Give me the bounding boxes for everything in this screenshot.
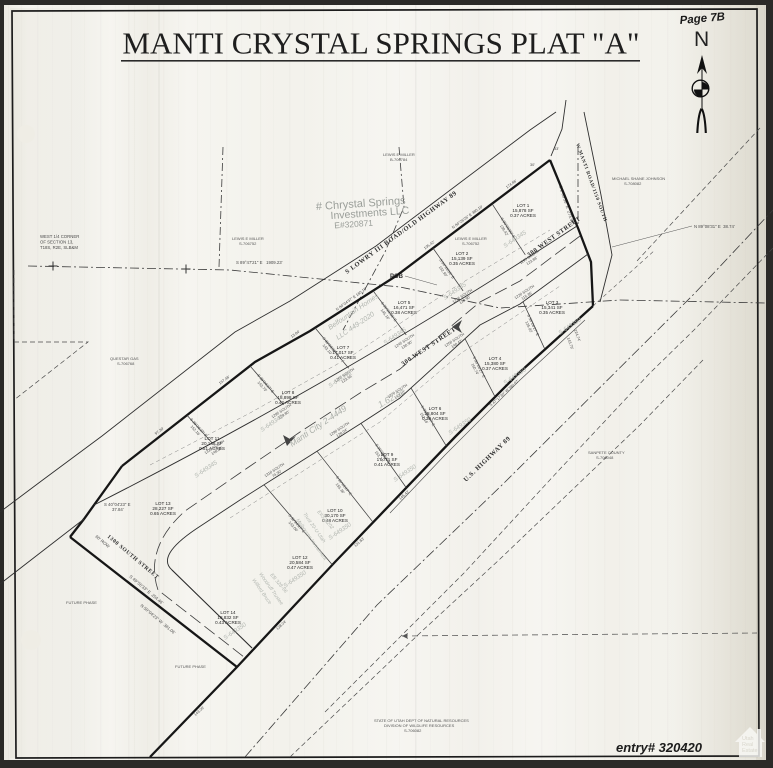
svg-text:S-706082: S-706082 (404, 728, 422, 733)
svg-text:0.47 ACRES: 0.47 ACRES (287, 565, 313, 570)
svg-text:N 89°08'31" E 38.74': N 89°08'31" E 38.74' (694, 224, 735, 229)
svg-text:OF SECTION 13,: OF SECTION 13, (40, 240, 73, 245)
svg-text:entry# 320420: entry# 320420 (616, 740, 703, 755)
svg-text:33': 33' (554, 147, 559, 151)
svg-text:0.43 ACRES: 0.43 ACRES (215, 620, 241, 625)
svg-text:0.65 ACRES: 0.65 ACRES (150, 511, 176, 516)
svg-text:S 89°47'21" E 1909.23': S 89°47'21" E 1909.23' (236, 260, 283, 265)
svg-text:T18S, R2E, SLB&M: T18S, R2E, SLB&M (40, 245, 78, 250)
svg-text:WEST 1/4 CORNER: WEST 1/4 CORNER (40, 234, 79, 239)
svg-text:0.41 ACRES: 0.41 ACRES (330, 355, 356, 360)
svg-text:0.35 ACRES: 0.35 ACRES (539, 310, 565, 315)
svg-text:0.38 ACRES: 0.38 ACRES (391, 310, 417, 315)
svg-text:0.37 ACRES: 0.37 ACRES (482, 366, 508, 371)
svg-text:30': 30' (530, 163, 535, 167)
svg-text:S-708082: S-708082 (624, 181, 642, 186)
svg-text:FUTURE PHASE: FUTURE PHASE (175, 664, 206, 669)
svg-text:0.37 ACRES: 0.37 ACRES (510, 213, 536, 218)
svg-text:FUTURE PHASE: FUTURE PHASE (66, 600, 97, 605)
svg-text:S-706752: S-706752 (239, 241, 257, 246)
svg-text:37.84': 37.84' (112, 507, 124, 512)
svg-text:B-706784: B-706784 (390, 157, 408, 162)
svg-text:MANTI CRYSTAL SPRINGS PLAT "A": MANTI CRYSTAL SPRINGS PLAT "A" (122, 26, 639, 61)
svg-text:S-706048: S-706048 (596, 455, 614, 460)
svg-text:N: N (694, 28, 709, 51)
svg-text:0.35 ACRES: 0.35 ACRES (449, 261, 475, 266)
svg-text:S-706752: S-706752 (462, 241, 480, 246)
svg-text:Estate: Estate (742, 748, 758, 754)
svg-text:S-706768: S-706768 (117, 361, 135, 366)
